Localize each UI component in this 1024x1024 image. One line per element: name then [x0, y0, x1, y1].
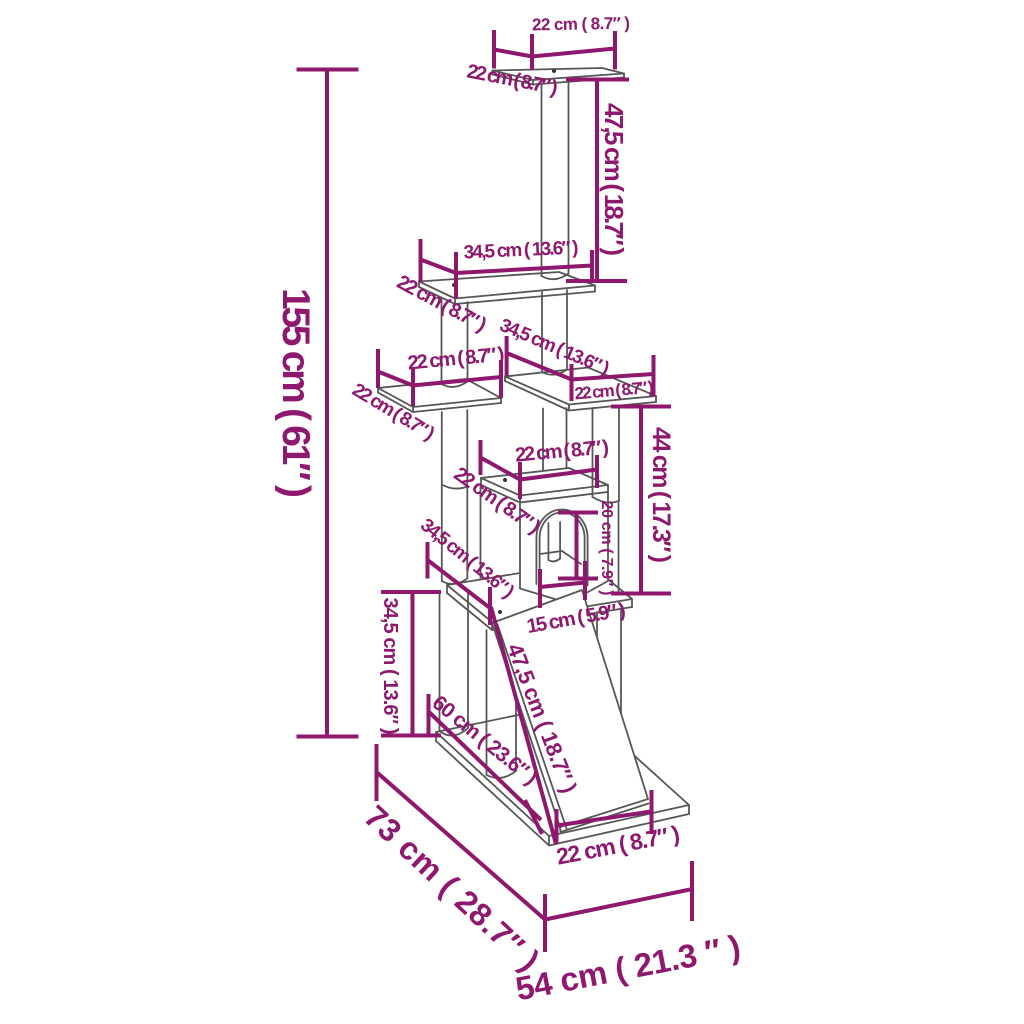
svg-text:73 cm ( 28.7″ ): 73 cm ( 28.7″ ) [357, 798, 546, 978]
svg-text:54 cm ( 21.3 ″ ): 54 cm ( 21.3 ″ ) [512, 928, 743, 1008]
svg-text:34,5 cm ( 13.6″ ): 34,5 cm ( 13.6″ ) [496, 315, 612, 380]
svg-text:22 cm ( 8.7″ ): 22 cm ( 8.7″ ) [407, 343, 506, 374]
svg-text:44 cm ( 17.3″ ): 44 cm ( 17.3″ ) [647, 427, 675, 563]
svg-text:155 cm ( 61″ ): 155 cm ( 61″ ) [274, 288, 317, 498]
svg-text:34,5 cm ( 13.6″ ): 34,5 cm ( 13.6″ ) [463, 238, 579, 264]
svg-text:22 cm ( 8.7″ ): 22 cm ( 8.7″ ) [532, 14, 630, 35]
svg-text:22 cm ( 8.7″ ): 22 cm ( 8.7″ ) [465, 60, 560, 99]
svg-text:34,5 cm ( 13.6″ ): 34,5 cm ( 13.6″ ) [379, 598, 401, 735]
svg-text:47,5 cm ( 18.7″ ): 47,5 cm ( 18.7″ ) [599, 103, 629, 256]
svg-text:20 cm ( 7.9″ ): 20 cm ( 7.9″ ) [598, 501, 615, 596]
